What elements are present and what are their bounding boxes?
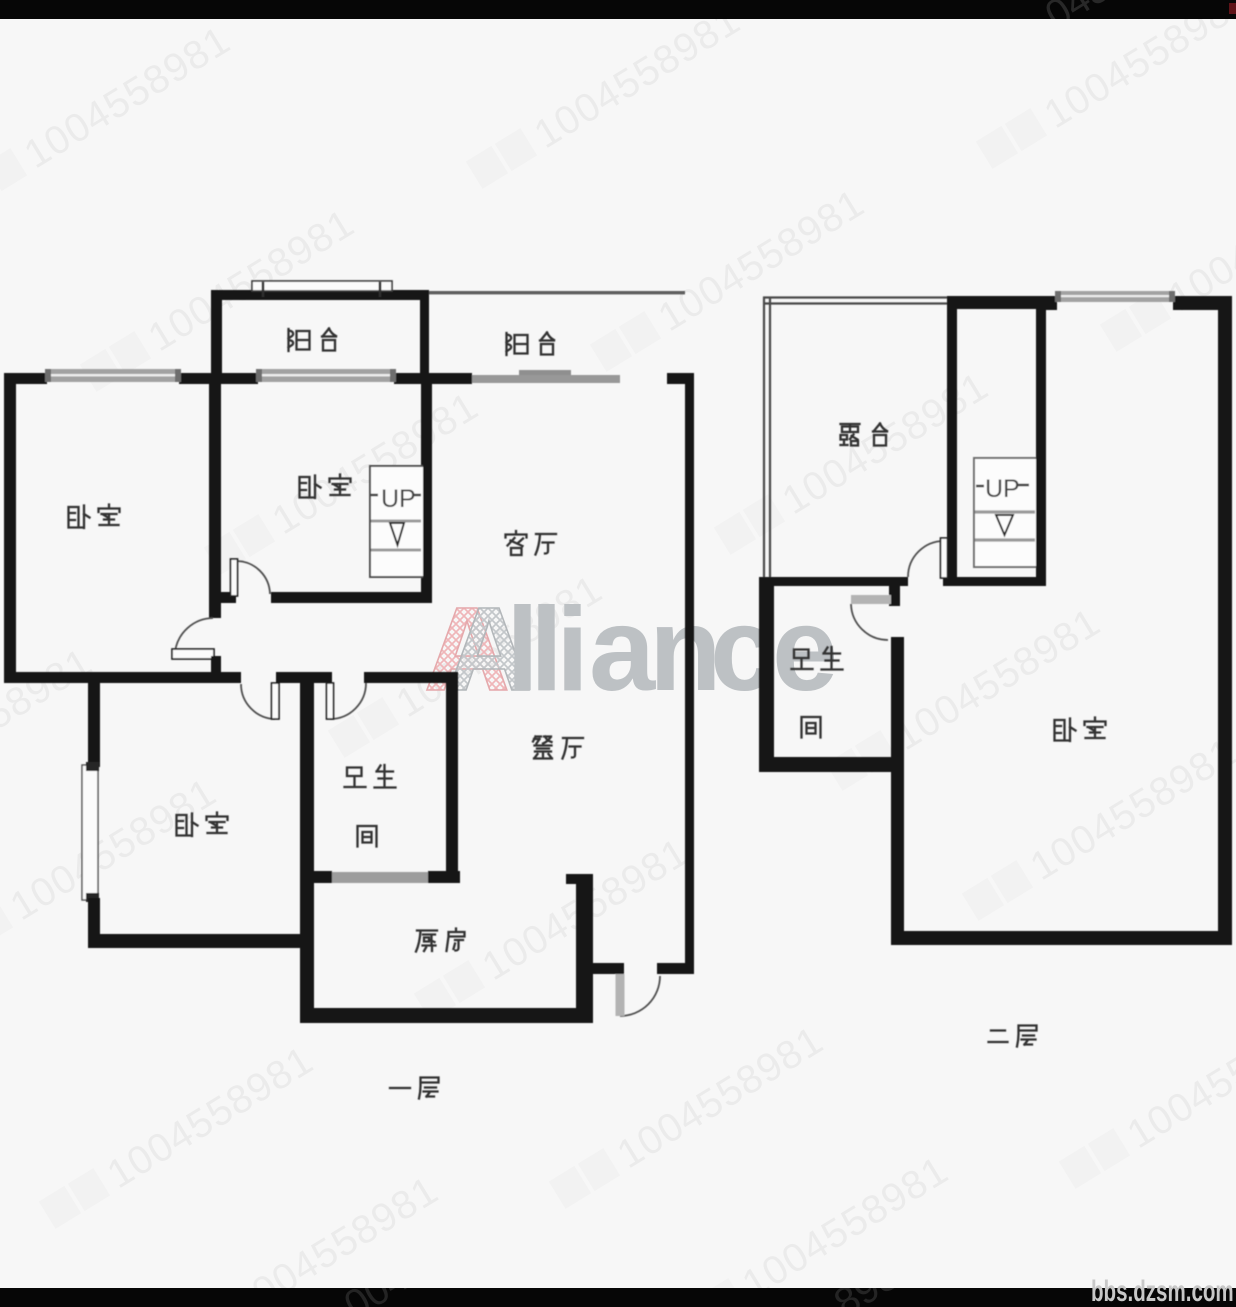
svg-text:UP: UP <box>381 485 416 513</box>
svg-text:i: i <box>556 583 589 716</box>
svg-text:a: a <box>589 583 656 716</box>
svg-text:UP: UP <box>985 475 1020 503</box>
svg-text:bbs.dzsm.com: bbs.dzsm.com <box>1091 1275 1234 1307</box>
